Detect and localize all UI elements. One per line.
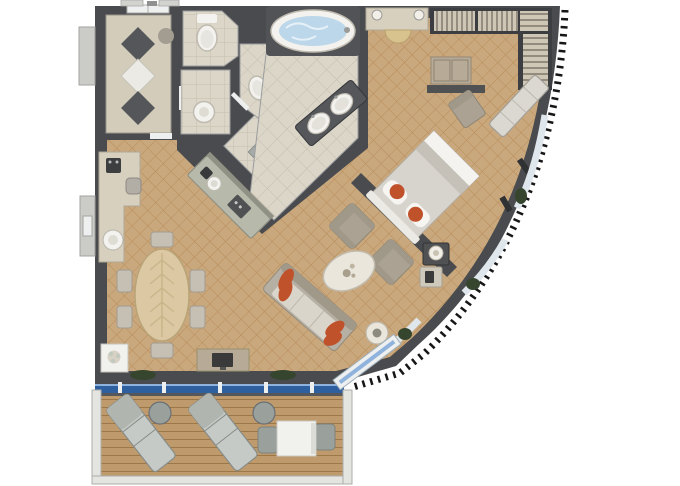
shore-door bbox=[83, 216, 92, 236]
bar-stool bbox=[126, 178, 141, 194]
desk-shelf bbox=[427, 85, 485, 93]
outdoor-chair bbox=[315, 424, 335, 450]
floor-plan-svg bbox=[0, 0, 680, 486]
dining-chair bbox=[151, 232, 173, 247]
powder-room bbox=[181, 70, 230, 134]
balcony-railing bbox=[92, 390, 101, 484]
hall-threshold bbox=[150, 133, 172, 139]
plant bbox=[270, 370, 296, 380]
bath-faucet bbox=[344, 27, 350, 33]
dining-chair bbox=[117, 270, 132, 292]
vanity-lamp bbox=[414, 10, 424, 20]
bathtub bbox=[266, 6, 360, 56]
plant bbox=[466, 278, 480, 290]
dining-chair bbox=[190, 270, 205, 292]
dining-chair bbox=[190, 306, 205, 328]
dining-chair bbox=[151, 343, 173, 358]
round-side-table bbox=[253, 402, 275, 424]
telephone bbox=[425, 271, 434, 283]
balcony-railing bbox=[92, 476, 352, 484]
pedestal bbox=[158, 28, 174, 44]
desk bbox=[431, 57, 471, 84]
plant bbox=[515, 188, 527, 204]
espresso-machine bbox=[106, 158, 121, 173]
balcony bbox=[92, 390, 352, 484]
outdoor-table bbox=[277, 421, 316, 456]
toilet-tank bbox=[197, 14, 217, 23]
dining-table bbox=[135, 249, 189, 341]
wc-room bbox=[183, 11, 238, 66]
balcony-railing bbox=[343, 390, 352, 484]
entry-hall bbox=[98, 5, 179, 140]
plant bbox=[130, 370, 156, 380]
outdoor-chair bbox=[258, 427, 278, 453]
bath-water bbox=[279, 16, 347, 46]
dining-chair bbox=[117, 306, 132, 328]
tv bbox=[212, 353, 233, 367]
round-side-table bbox=[149, 402, 171, 424]
vanity-lamp bbox=[372, 10, 382, 20]
plant bbox=[398, 328, 412, 340]
floor-plan-stage bbox=[0, 0, 680, 486]
